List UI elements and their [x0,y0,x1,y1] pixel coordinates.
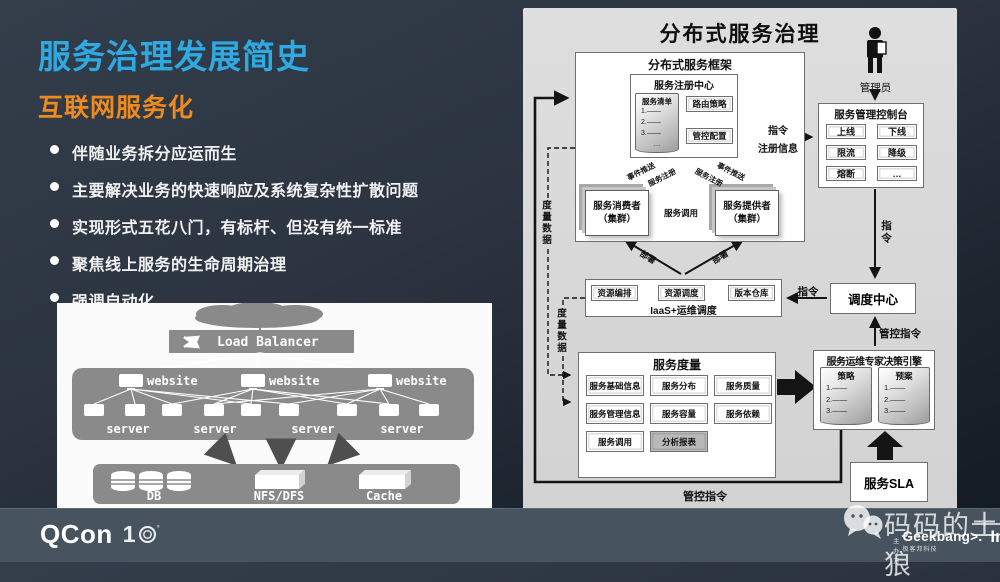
consumer-cluster-box: 服务消费者 （集群） [585,190,649,236]
decision-engine-box: 服务运维专家决策引擎 策略 1.—— 2.—— 3.—— … 预案 1.—— 2… [813,350,935,430]
strategy-item: … [821,417,871,425]
cmd-label: 指令 [754,122,802,137]
infoq-logo: InfoQ [990,527,1000,547]
decision-engine-title: 服务运维专家决策引擎 [814,351,934,368]
website-label: website [269,374,320,388]
plan-item: … [879,417,929,425]
governance-diagram-panel: 分布式服务治理 [523,8,957,513]
console-btn-online: 上线 [826,124,866,139]
strategy-title: 策略 [821,368,871,382]
bullet-item: 实现形式五花八门，有标杆、但没有统一标准 [46,214,419,238]
geekbang-subtitle: 极客邦科技 [903,544,983,553]
metric-basic-info: 服务基础信息 [586,375,644,396]
metric-dependency: 服务依赖 [714,403,772,424]
db-label: DB [147,489,161,503]
service-list-scroll: 服务清单 1.—— 2.—— 3.—— … [635,93,679,153]
cmd-label-2: 指令 [791,284,825,299]
strategy-scroll: 策略 1.—— 2.—— 3.—— … [820,367,872,425]
legacy-architecture-svg: Load Balancer website website website se… [57,303,492,508]
service-list-item: 2.—— [636,118,678,129]
metrics-decision-arrow [777,370,816,404]
metric-mgmt-info: 服务管理信息 [586,403,644,424]
metrics-title: 服务度量 [579,353,775,373]
page-subtitle: 互联网服务化 [38,88,194,124]
plan-item: 3.—— [879,405,929,417]
console-btn-more: … [877,166,917,181]
cache-icon [359,470,411,489]
metric-analysis-report: 分析报表 [650,431,708,452]
deploy-label: 部署 [630,243,665,271]
tier-arrows [215,444,349,456]
metric-capacity: 服务容量 [650,403,708,424]
service-call-label: 服务调用 [659,207,703,219]
host-label: 主办方 [893,535,900,565]
load-balancer-label: Load Balancer [217,335,319,350]
service-list-item: 3.—— [636,129,678,140]
service-list-title: 服务清单 [636,94,678,107]
metric-quality: 服务质量 [714,375,772,396]
qcon-ring-icon [139,526,156,543]
dispatch-center-box: 调度中心 [830,283,916,314]
console-btn-ratelimit: 限流 [826,145,866,160]
metric-data-label-1: 度量数据 [538,200,552,246]
service-list-item: 1.—— [636,107,678,118]
sla-decision-arrow [867,431,903,460]
server-label: server [291,422,334,436]
registry-title: 服务注册中心 [631,75,737,92]
cloud-icon [195,303,323,331]
plan-title: 预案 [879,368,929,382]
watermark-rule [972,523,1000,525]
provider-label: 服务提供者 [723,200,771,213]
website-label: website [396,374,447,388]
routing-policy-box: 路由策略 [686,96,733,112]
wechat-icon [842,503,884,543]
page-title: 服务治理发展简史 [38,30,310,78]
metric-data-label-2: 度量数据 [553,308,567,354]
geekbang-logo: Geekbang>. [903,529,983,544]
server-label: server [193,422,236,436]
nfs-icon [255,470,305,489]
website-label: website [147,374,198,388]
consumer-sub-label: （集群） [598,213,636,226]
console-title: 服务管理控制台 [819,104,923,122]
version-repo-box: 版本仓库 [728,285,775,301]
resource-orchestration-box: 资源编排 [591,285,638,301]
metric-distribution: 服务分布 [650,375,708,396]
server-label: server [106,422,149,436]
strategy-item: 3.—— [821,405,871,417]
console-btn-circuitbreak: 熔断 [826,166,866,181]
qcon-logo: QCon 1 ° [40,519,160,550]
provider-sub-label: （集群） [728,213,766,226]
reg-info-label: 注册信息 [754,140,802,155]
strategy-item: 1.—— [821,382,871,394]
nfs-label: NFS/DFS [254,489,305,503]
strategy-item: 2.—— [821,394,871,406]
iaas-box: 资源编排 资源调度 版本仓库 IaaS+运维调度 [585,279,782,317]
host-logos: 主办方 Geekbang>. 极客邦科技 InfoQ [893,529,1000,565]
sla-box: 服务SLA [850,462,928,502]
server-label: server [380,422,423,436]
console-btn-offline: 下线 [877,124,917,139]
provider-cluster-box: 服务提供者 （集群） [715,190,779,236]
admin-label: 管理员 [853,80,898,95]
qcon-wordmark: QCon [40,519,113,550]
control-config-box: 管控配置 [686,128,733,144]
bullet-item: 聚焦线上服务的生命周期治理 [46,251,419,275]
framework-title: 分布式服务框架 [576,53,804,73]
cache-label: Cache [366,489,402,503]
metrics-box: 服务度量 服务基础信息 服务分布 服务质量 服务管理信息 服务容量 服务依赖 服… [578,352,776,478]
qcon-trademark-dot: ° [157,524,160,533]
consumer-label: 服务消费者 [593,200,641,213]
bullet-item: 伴随业务拆分应运而生 [46,140,419,164]
qcon-year-digit: 1 [123,521,136,548]
cmd-vertical-label: 指令 [879,220,894,245]
bullet-list: 伴随业务拆分应运而生 主要解决业务的快速响应及系统复杂性扩散问题 实现形式五花八… [46,140,419,325]
bullet-item: 主要解决业务的快速响应及系统复杂性扩散问题 [46,177,419,201]
iaas-label: IaaS+运维调度 [586,302,781,317]
deploy-label: 部署 [702,243,737,271]
console-box: 服务管理控制台 上线 下线 限流 降级 熔断 … [818,103,924,188]
resource-scheduling-box: 资源调度 [658,285,705,301]
plan-scroll: 预案 1.—— 2.—— 3.—— … [878,367,930,425]
plan-item: 2.—— [879,394,929,406]
console-btn-degrade: 降级 [877,145,917,160]
service-list-item: … [636,140,678,151]
legacy-architecture-diagram: Load Balancer website website website se… [57,303,492,508]
metric-invocation: 服务调用 [586,431,644,452]
control-cmd-bottom-label: 管控指令 [645,488,765,504]
diagram-title: 分布式服务治理 [580,18,900,48]
plan-item: 1.—— [879,382,929,394]
control-cmd-label: 管控指令 [879,326,921,341]
database-icon [111,471,191,491]
